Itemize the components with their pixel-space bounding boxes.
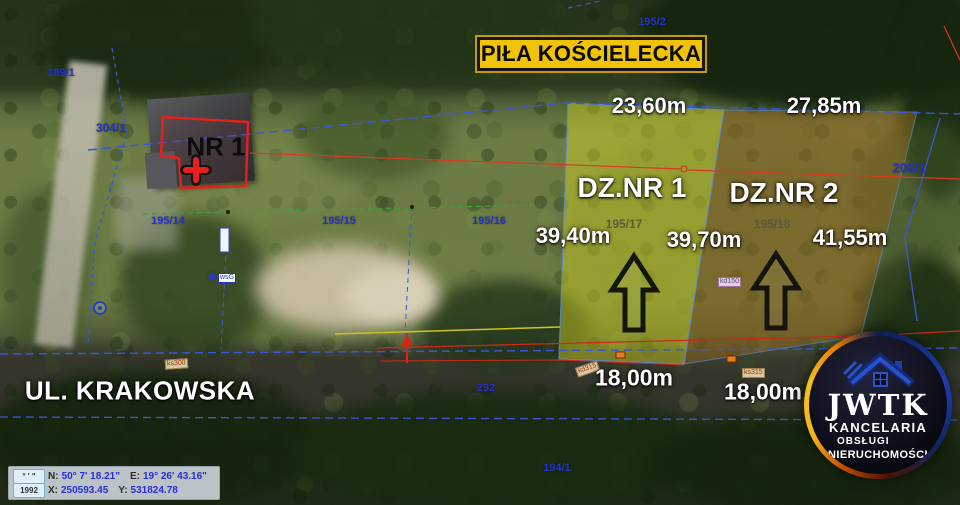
parcel-number: 206/1 (893, 161, 926, 176)
logo-line-2: OBSŁUGI (837, 436, 890, 448)
dirt-patch (345, 268, 440, 323)
north-label: N: (48, 471, 59, 482)
parcel-1-left-dimension: 39,40m (536, 223, 611, 249)
parcel-1-title: DZ.NR 1 (578, 172, 687, 204)
parcel-number: 195/16 (472, 215, 506, 227)
y-label: Y: (118, 485, 127, 496)
logo-line-3: NIERUCHOMOŚCI (828, 448, 928, 462)
agency-logo: JWTK KANCELARIA OBSŁUGI NIERUCHOMOŚCI (804, 331, 952, 479)
street-label: UL. KRAKOWSKA (25, 376, 255, 407)
parcel-number: 195/18 (754, 217, 791, 231)
parcel-2-title: DZ.NR 2 (730, 177, 839, 209)
north-value: 50° 7' 18.21" (62, 471, 120, 482)
y-value: 531824.78 (131, 485, 178, 496)
tree-cluster (300, 90, 450, 180)
parcel-1-top-dimension: 23,60m (612, 93, 687, 119)
angle-format-button[interactable]: ° ' " (13, 469, 45, 484)
location-banner-title: PIŁA KOŚCIELECKA (481, 41, 701, 67)
logo-brand: JWTK (827, 390, 928, 420)
location-banner: PIŁA KOŚCIELECKA (477, 37, 705, 71)
tree-cluster (290, 390, 710, 505)
parcel-number: 195/2 (638, 16, 666, 28)
parcel-number: 195/15 (322, 215, 356, 227)
parcel-number: 189/1 (47, 67, 75, 79)
logo-line-1: KANCELARIA (829, 420, 927, 436)
parcel-2-top-dimension: 27,85m (787, 93, 862, 119)
parcel-number: 195/14 (151, 215, 185, 227)
statusbar-row-geographic: ° ' " N: 50° 7' 18.21" E: 19° 26' 43.16" (13, 469, 215, 483)
parcel-2-bottom-dimension: 18,00m (724, 379, 802, 406)
parcel-2-right-dimension: 41,55m (813, 225, 888, 251)
east-value: 19° 26' 43.16" (143, 471, 207, 482)
coordinates-statusbar: ° ' " N: 50° 7' 18.21" E: 19° 26' 43.16"… (8, 466, 220, 500)
x-label: X: (48, 485, 58, 496)
utility-label: wsG (218, 273, 236, 283)
parcel-number: 194/1 (543, 462, 571, 474)
x-value: 250593.45 (61, 485, 108, 496)
parcel-number: 195/17 (606, 217, 643, 231)
parcel-number: 304/1 (96, 121, 126, 135)
statusbar-row-projected: 1992 X: 250593.45 Y: 531824.78 (13, 483, 215, 497)
building-number-label: NR 1 (186, 132, 245, 163)
agency-logo-inner: JWTK KANCELARIA OBSŁUGI NIERUCHOMOŚCI (809, 336, 947, 474)
parcel-number: 292 (477, 382, 495, 394)
cadastral-map-canvas[interactable]: ks300 kd315 kd150 ks315 wsG 195/2 189/1 … (0, 0, 960, 505)
east-label: E: (130, 471, 140, 482)
parcel-1-bottom-dimension: 18,00m (595, 365, 673, 392)
tree-cluster (420, 280, 590, 370)
parcel-1-right-dimension: 39,70m (667, 227, 742, 253)
utility-label: kd150 (718, 277, 741, 287)
house-icon (838, 348, 918, 388)
house-annex (145, 151, 177, 189)
utility-label: ks300 (165, 358, 188, 370)
crs-button[interactable]: 1992 (13, 483, 45, 498)
utility-label: ks315 (742, 368, 765, 378)
